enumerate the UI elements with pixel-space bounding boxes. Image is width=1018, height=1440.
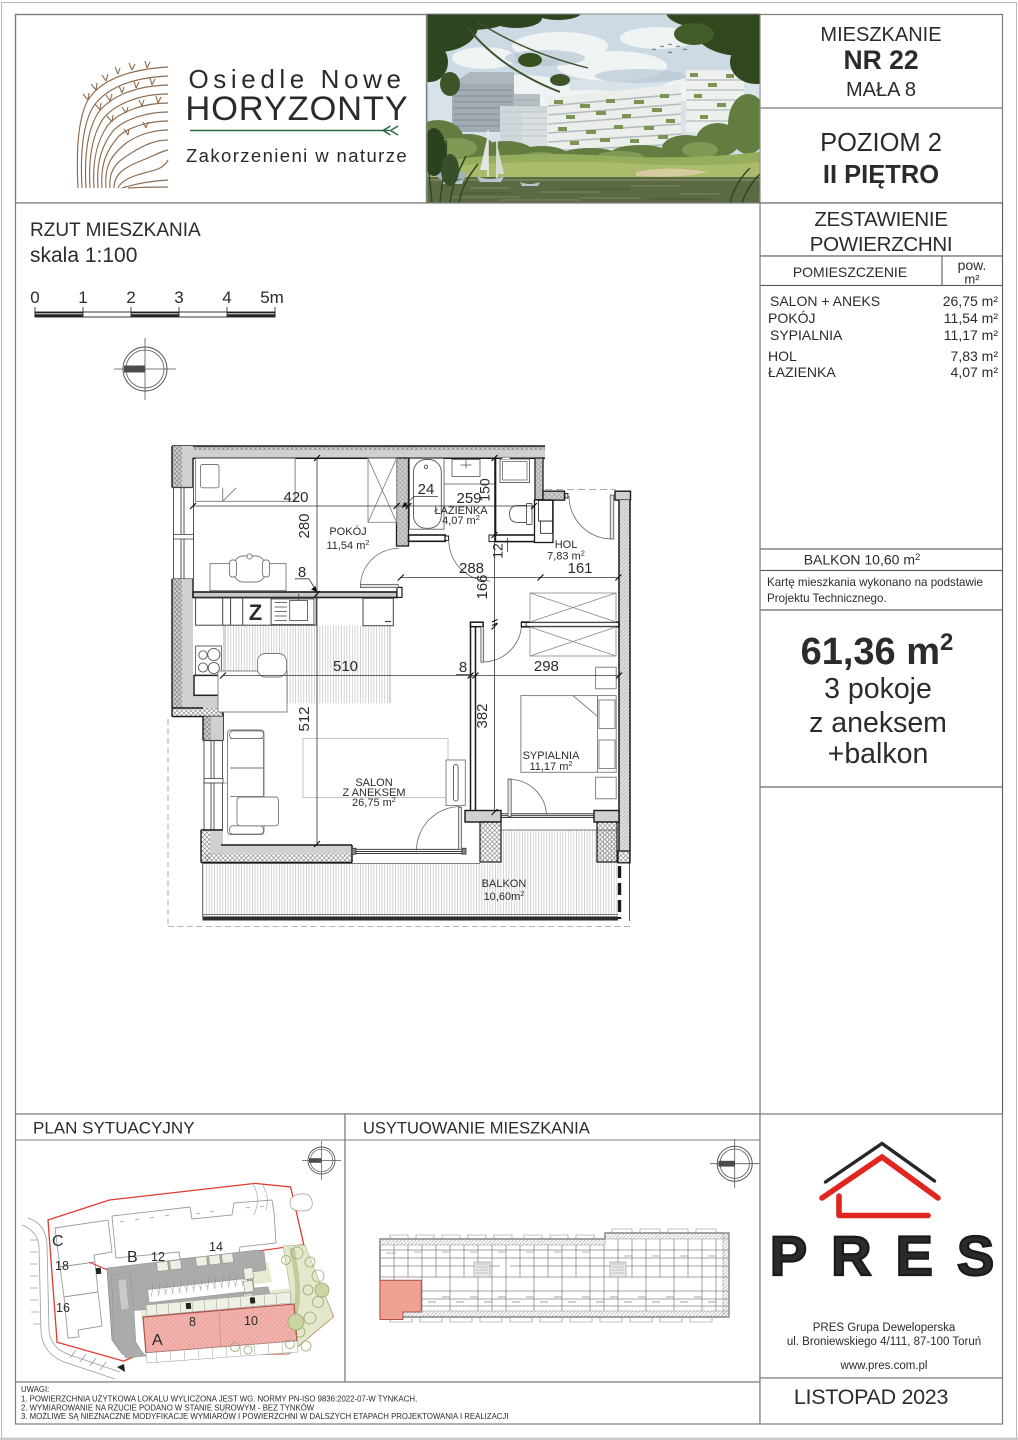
svg-text:288: 288	[459, 560, 484, 577]
svg-text:2: 2	[126, 288, 135, 307]
svg-text:PLAN SYTUACYJNY: PLAN SYTUACYJNY	[33, 1119, 195, 1138]
svg-text:11,17 m²: 11,17 m²	[944, 327, 999, 343]
svg-text:z aneksem: z aneksem	[809, 707, 947, 739]
svg-text:BALKON 10,60 m2: BALKON 10,60 m2	[804, 552, 921, 568]
svg-text:UWAGI:: UWAGI:	[21, 1385, 49, 1394]
svg-text:II PIĘTRO: II PIĘTRO	[823, 161, 939, 189]
svg-text:0: 0	[30, 288, 39, 307]
svg-text:3 pokoje: 3 pokoje	[824, 673, 932, 705]
svg-text:POKÓJ: POKÓJ	[768, 310, 815, 326]
svg-text:MAŁA 8: MAŁA 8	[846, 79, 916, 101]
svg-text:3. MOŻLIWE SĄ NIEZNACZNE MODYF: 3. MOŻLIWE SĄ NIEZNACZNE MODYFIKACJE WYM…	[21, 1412, 509, 1421]
svg-text:18: 18	[55, 1259, 69, 1273]
svg-text:ŁAZIENKA: ŁAZIENKA	[768, 364, 836, 380]
svg-text:Kartę mieszkania wykonano na p: Kartę mieszkania wykonano na podstawie	[767, 576, 983, 589]
svg-text:12: 12	[490, 543, 506, 559]
svg-text:3: 3	[174, 288, 183, 307]
svg-text:512: 512	[296, 706, 313, 731]
svg-text:150: 150	[477, 478, 493, 502]
svg-text:8: 8	[459, 659, 467, 676]
svg-text:B: B	[127, 1249, 138, 1266]
svg-text:298: 298	[534, 658, 559, 675]
svg-text:10: 10	[244, 1314, 258, 1328]
svg-text:A: A	[152, 1332, 163, 1349]
svg-text:NR 22: NR 22	[843, 45, 918, 75]
svg-text:PRES Grupa Deweloperska: PRES Grupa Deweloperska	[813, 1322, 956, 1334]
svg-text:7,83 m²: 7,83 m²	[951, 348, 999, 364]
svg-text:420: 420	[283, 489, 308, 506]
svg-text:HOL: HOL	[768, 348, 797, 364]
svg-text:POWIERZCHNI: POWIERZCHNI	[810, 233, 952, 256]
svg-text:16: 16	[56, 1301, 70, 1315]
svg-text:skala 1:100: skala 1:100	[30, 244, 137, 267]
svg-text:POMIESZCZENIE: POMIESZCZENIE	[793, 264, 907, 280]
svg-text:11,54 m²: 11,54 m²	[944, 310, 999, 326]
svg-text:m²: m²	[964, 272, 980, 287]
svg-text:MIESZKANIE: MIESZKANIE	[820, 24, 941, 46]
svg-text:HOL: HOL	[555, 539, 578, 551]
svg-text:14: 14	[209, 1240, 223, 1254]
svg-text:161: 161	[567, 560, 592, 577]
svg-text:HORYZONTY: HORYZONTY	[185, 90, 408, 128]
svg-text:5m: 5m	[260, 288, 284, 307]
svg-text:26,75 m2: 26,75 m2	[352, 795, 396, 809]
svg-text:4: 4	[222, 288, 231, 307]
svg-text:24: 24	[418, 481, 435, 498]
svg-text:510: 510	[333, 658, 358, 675]
svg-text:Projektu Technicznego.: Projektu Technicznego.	[767, 592, 887, 605]
svg-text:RZUT MIESZKANIA: RZUT MIESZKANIA	[30, 220, 201, 241]
svg-text:8: 8	[189, 1315, 196, 1329]
svg-text:C: C	[52, 1233, 64, 1250]
svg-text:61,36 m2: 61,36 m2	[801, 629, 954, 673]
svg-text:12: 12	[151, 1250, 165, 1264]
svg-text:26,75 m²: 26,75 m²	[943, 293, 999, 309]
svg-text:LISTOPAD 2023: LISTOPAD 2023	[794, 1385, 949, 1409]
svg-text:www.pres.com.pl: www.pres.com.pl	[840, 1360, 928, 1372]
svg-text:SALON + ANEKS: SALON + ANEKS	[770, 293, 880, 309]
svg-text:ZESTAWIENIE: ZESTAWIENIE	[814, 208, 947, 231]
svg-text:ul. Broniewskiego 4/111, 87-10: ul. Broniewskiego 4/111, 87-100 Toruń	[787, 1336, 981, 1348]
svg-text:4,07 m2: 4,07 m2	[442, 513, 480, 527]
svg-text:POKÓJ: POKÓJ	[329, 525, 366, 538]
svg-text:Z: Z	[249, 600, 262, 625]
svg-text:280: 280	[296, 513, 313, 538]
svg-text:10,60m2: 10,60m2	[484, 889, 525, 903]
svg-text:PRES: PRES	[770, 1224, 1018, 1287]
svg-text:Zakorzenieni w naturze: Zakorzenieni w naturze	[186, 145, 408, 166]
svg-text:11,54 m2: 11,54 m2	[326, 538, 369, 552]
svg-text:+balkon: +balkon	[828, 738, 929, 770]
svg-text:382: 382	[474, 703, 491, 728]
svg-text:1: 1	[78, 288, 87, 307]
svg-text:USYTUOWANIE MIESZKANIA: USYTUOWANIE MIESZKANIA	[363, 1120, 590, 1138]
svg-text:166: 166	[474, 574, 491, 599]
svg-text:POZIOM 2: POZIOM 2	[820, 129, 942, 157]
svg-text:11,17 m2: 11,17 m2	[529, 759, 572, 773]
svg-text:1. POWIERZCHNIA UŻYTKOWA LOKAL: 1. POWIERZCHNIA UŻYTKOWA LOKALU WYLICZON…	[21, 1395, 417, 1404]
svg-text:SYPIALNIA: SYPIALNIA	[770, 327, 843, 343]
svg-text:4,07 m²: 4,07 m²	[951, 364, 999, 380]
